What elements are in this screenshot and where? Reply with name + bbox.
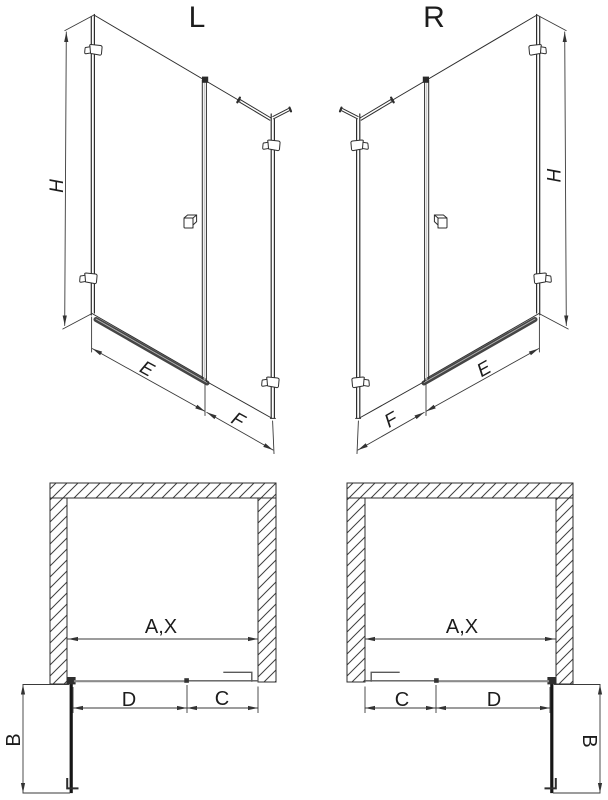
- iso-view-left: [63, 15, 291, 454]
- label-depth-left-plan: B: [3, 733, 25, 746]
- label-fixed-left-plan: C: [215, 688, 229, 710]
- wall-left-left-plan: [50, 498, 67, 684]
- label-door-left-plan: D: [122, 689, 136, 711]
- label-total-width-right-plan: A,X: [446, 616, 478, 638]
- shower-enclosure-technical-drawing: L R H H E E F F A,X A,X D C C D B B: [0, 0, 608, 800]
- label-fixed-right-plan: C: [395, 689, 409, 711]
- wall-top-right-plan: [347, 483, 573, 498]
- label-variant-right: R: [423, 1, 445, 34]
- label-height-left: H: [47, 179, 68, 193]
- label-side-width-left: F: [228, 408, 250, 433]
- label-height-right: H: [542, 168, 563, 182]
- label-door-width-right: E: [474, 357, 496, 382]
- label-depth-right-plan: B: [578, 734, 600, 747]
- label-door-width-left: E: [136, 357, 158, 382]
- wall-left-right-plan: [347, 498, 365, 682]
- technical-drawing-page: L R H H E E F F A,X A,X D C C D B B: [0, 0, 608, 800]
- iso-view-right: [340, 15, 568, 454]
- label-side-width-right: F: [381, 408, 403, 433]
- label-variant-left: L: [189, 1, 206, 34]
- wall-right-right-plan: [556, 498, 573, 684]
- wall-top-left-plan: [50, 483, 276, 498]
- label-total-width-left-plan: A,X: [145, 616, 177, 638]
- label-door-right-plan: D: [487, 689, 501, 711]
- wall-right-left-plan: [258, 498, 276, 682]
